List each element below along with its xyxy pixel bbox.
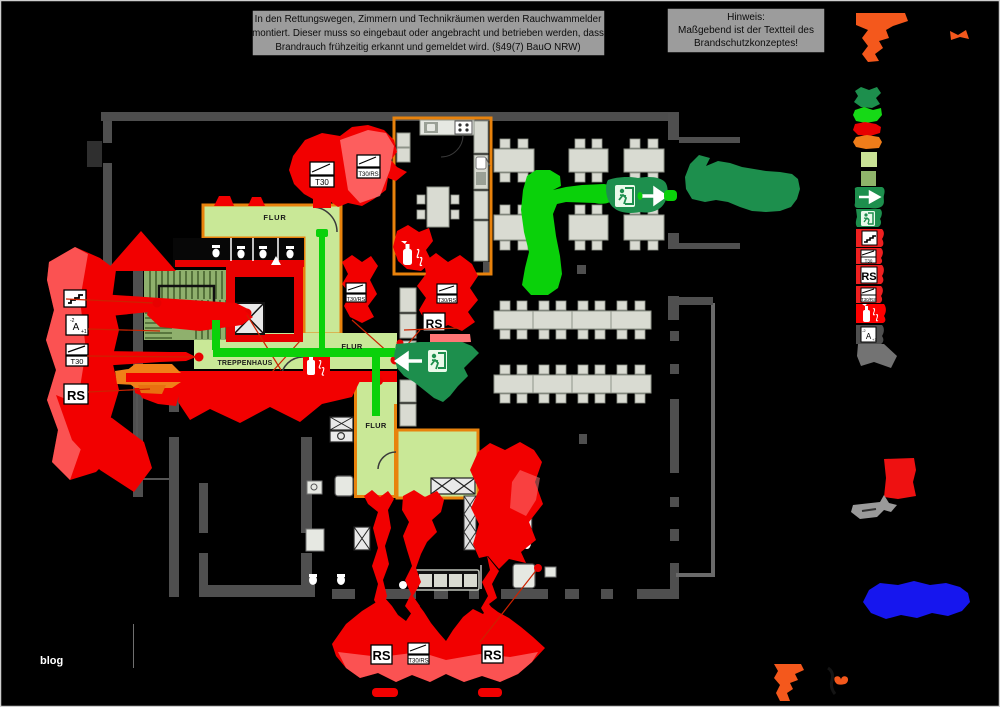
svg-text:TREPPENHAUS: TREPPENHAUS bbox=[217, 360, 272, 367]
svg-text:Brandschutzkonzeptes!: Brandschutzkonzeptes! bbox=[694, 38, 798, 49]
svg-text:Hinweis:: Hinweis: bbox=[727, 12, 765, 23]
svg-text:T30/RS: T30/RS bbox=[438, 298, 457, 304]
svg-text:T30: T30 bbox=[315, 178, 329, 187]
svg-text:RS: RS bbox=[483, 648, 501, 663]
svg-text:In den Rettungswegen, Zimmern: In den Rettungswegen, Zimmern und Techni… bbox=[255, 14, 602, 25]
svg-text:A: A bbox=[866, 332, 872, 341]
svg-text:FLUR: FLUR bbox=[365, 421, 386, 430]
svg-text:T30: T30 bbox=[71, 357, 84, 366]
svg-text:blog: blog bbox=[40, 655, 63, 667]
svg-text:FLUR: FLUR bbox=[263, 213, 286, 222]
svg-text:T30/RS: T30/RS bbox=[408, 659, 428, 665]
svg-text:Brandrauch frühzeitig erkannt: Brandrauch frühzeitig erkannt und gemeld… bbox=[275, 42, 580, 53]
svg-text:Maßgebend ist der Textteil des: Maßgebend ist der Textteil des bbox=[678, 25, 814, 36]
svg-text:montiert. Dieser muss so einge: montiert. Dieser muss so eingebaut oder … bbox=[252, 28, 604, 39]
svg-text:FLUR: FLUR bbox=[341, 342, 362, 351]
svg-text:-2: -2 bbox=[70, 318, 75, 324]
svg-text:RS: RS bbox=[372, 648, 390, 663]
svg-text:T30: T30 bbox=[865, 259, 873, 264]
svg-text:RS: RS bbox=[67, 388, 85, 403]
svg-text:+1: +1 bbox=[872, 337, 877, 342]
svg-text:RS: RS bbox=[861, 271, 876, 283]
svg-text:T30/RS: T30/RS bbox=[358, 172, 378, 178]
svg-text:T30/RS: T30/RS bbox=[347, 297, 366, 303]
svg-text:+1: +1 bbox=[81, 329, 87, 335]
svg-text:T30/RS: T30/RS bbox=[861, 297, 876, 302]
